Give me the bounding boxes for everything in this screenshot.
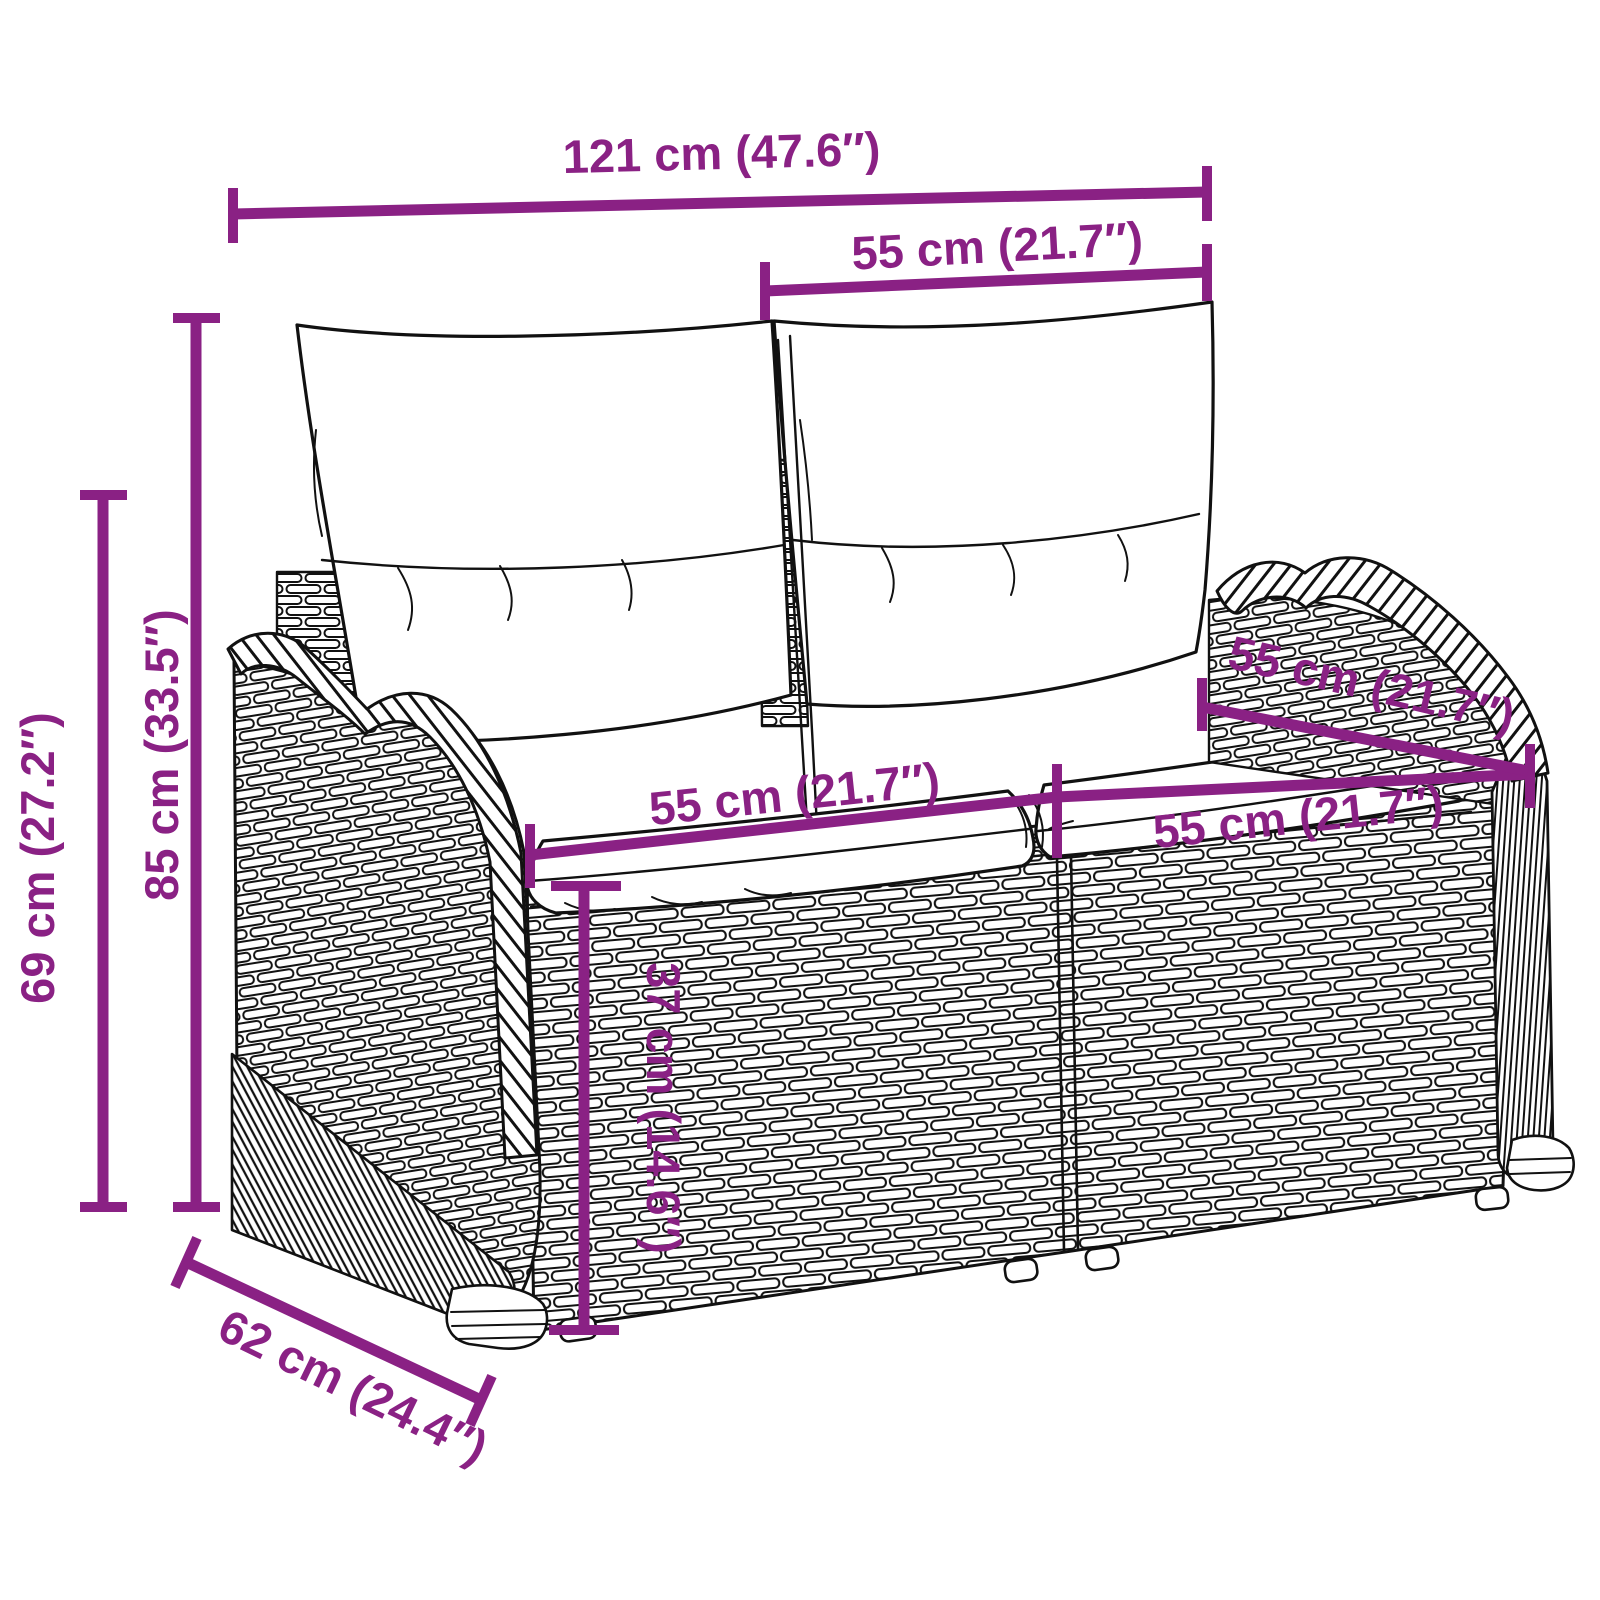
armrest-left-foot [447,1285,547,1348]
label-armrest-height: 69 cm (27.2″) [11,712,64,1004]
armrest-right-outer-column [1492,742,1553,1180]
back-pillow-left [297,321,791,742]
dim-armrest-height [80,495,127,1207]
product-dimension-diagram: 121 cm (47.6″) 55 cm (21.7″) 85 cm (33.5… [0,0,1600,1600]
label-total-width: 121 cm (47.6″) [562,122,881,183]
back-pillow-right [774,302,1213,706]
label-back-cushion-width: 55 cm (21.7″) [850,211,1144,279]
label-total-height: 85 cm (33.5″) [135,609,188,901]
label-seat-height: 37 cm (14.6″) [637,962,690,1254]
bench-diagram-canvas: 121 cm (47.6″) 55 cm (21.7″) 85 cm (33.5… [0,0,1600,1600]
armrest-right-foot [1507,1136,1574,1191]
